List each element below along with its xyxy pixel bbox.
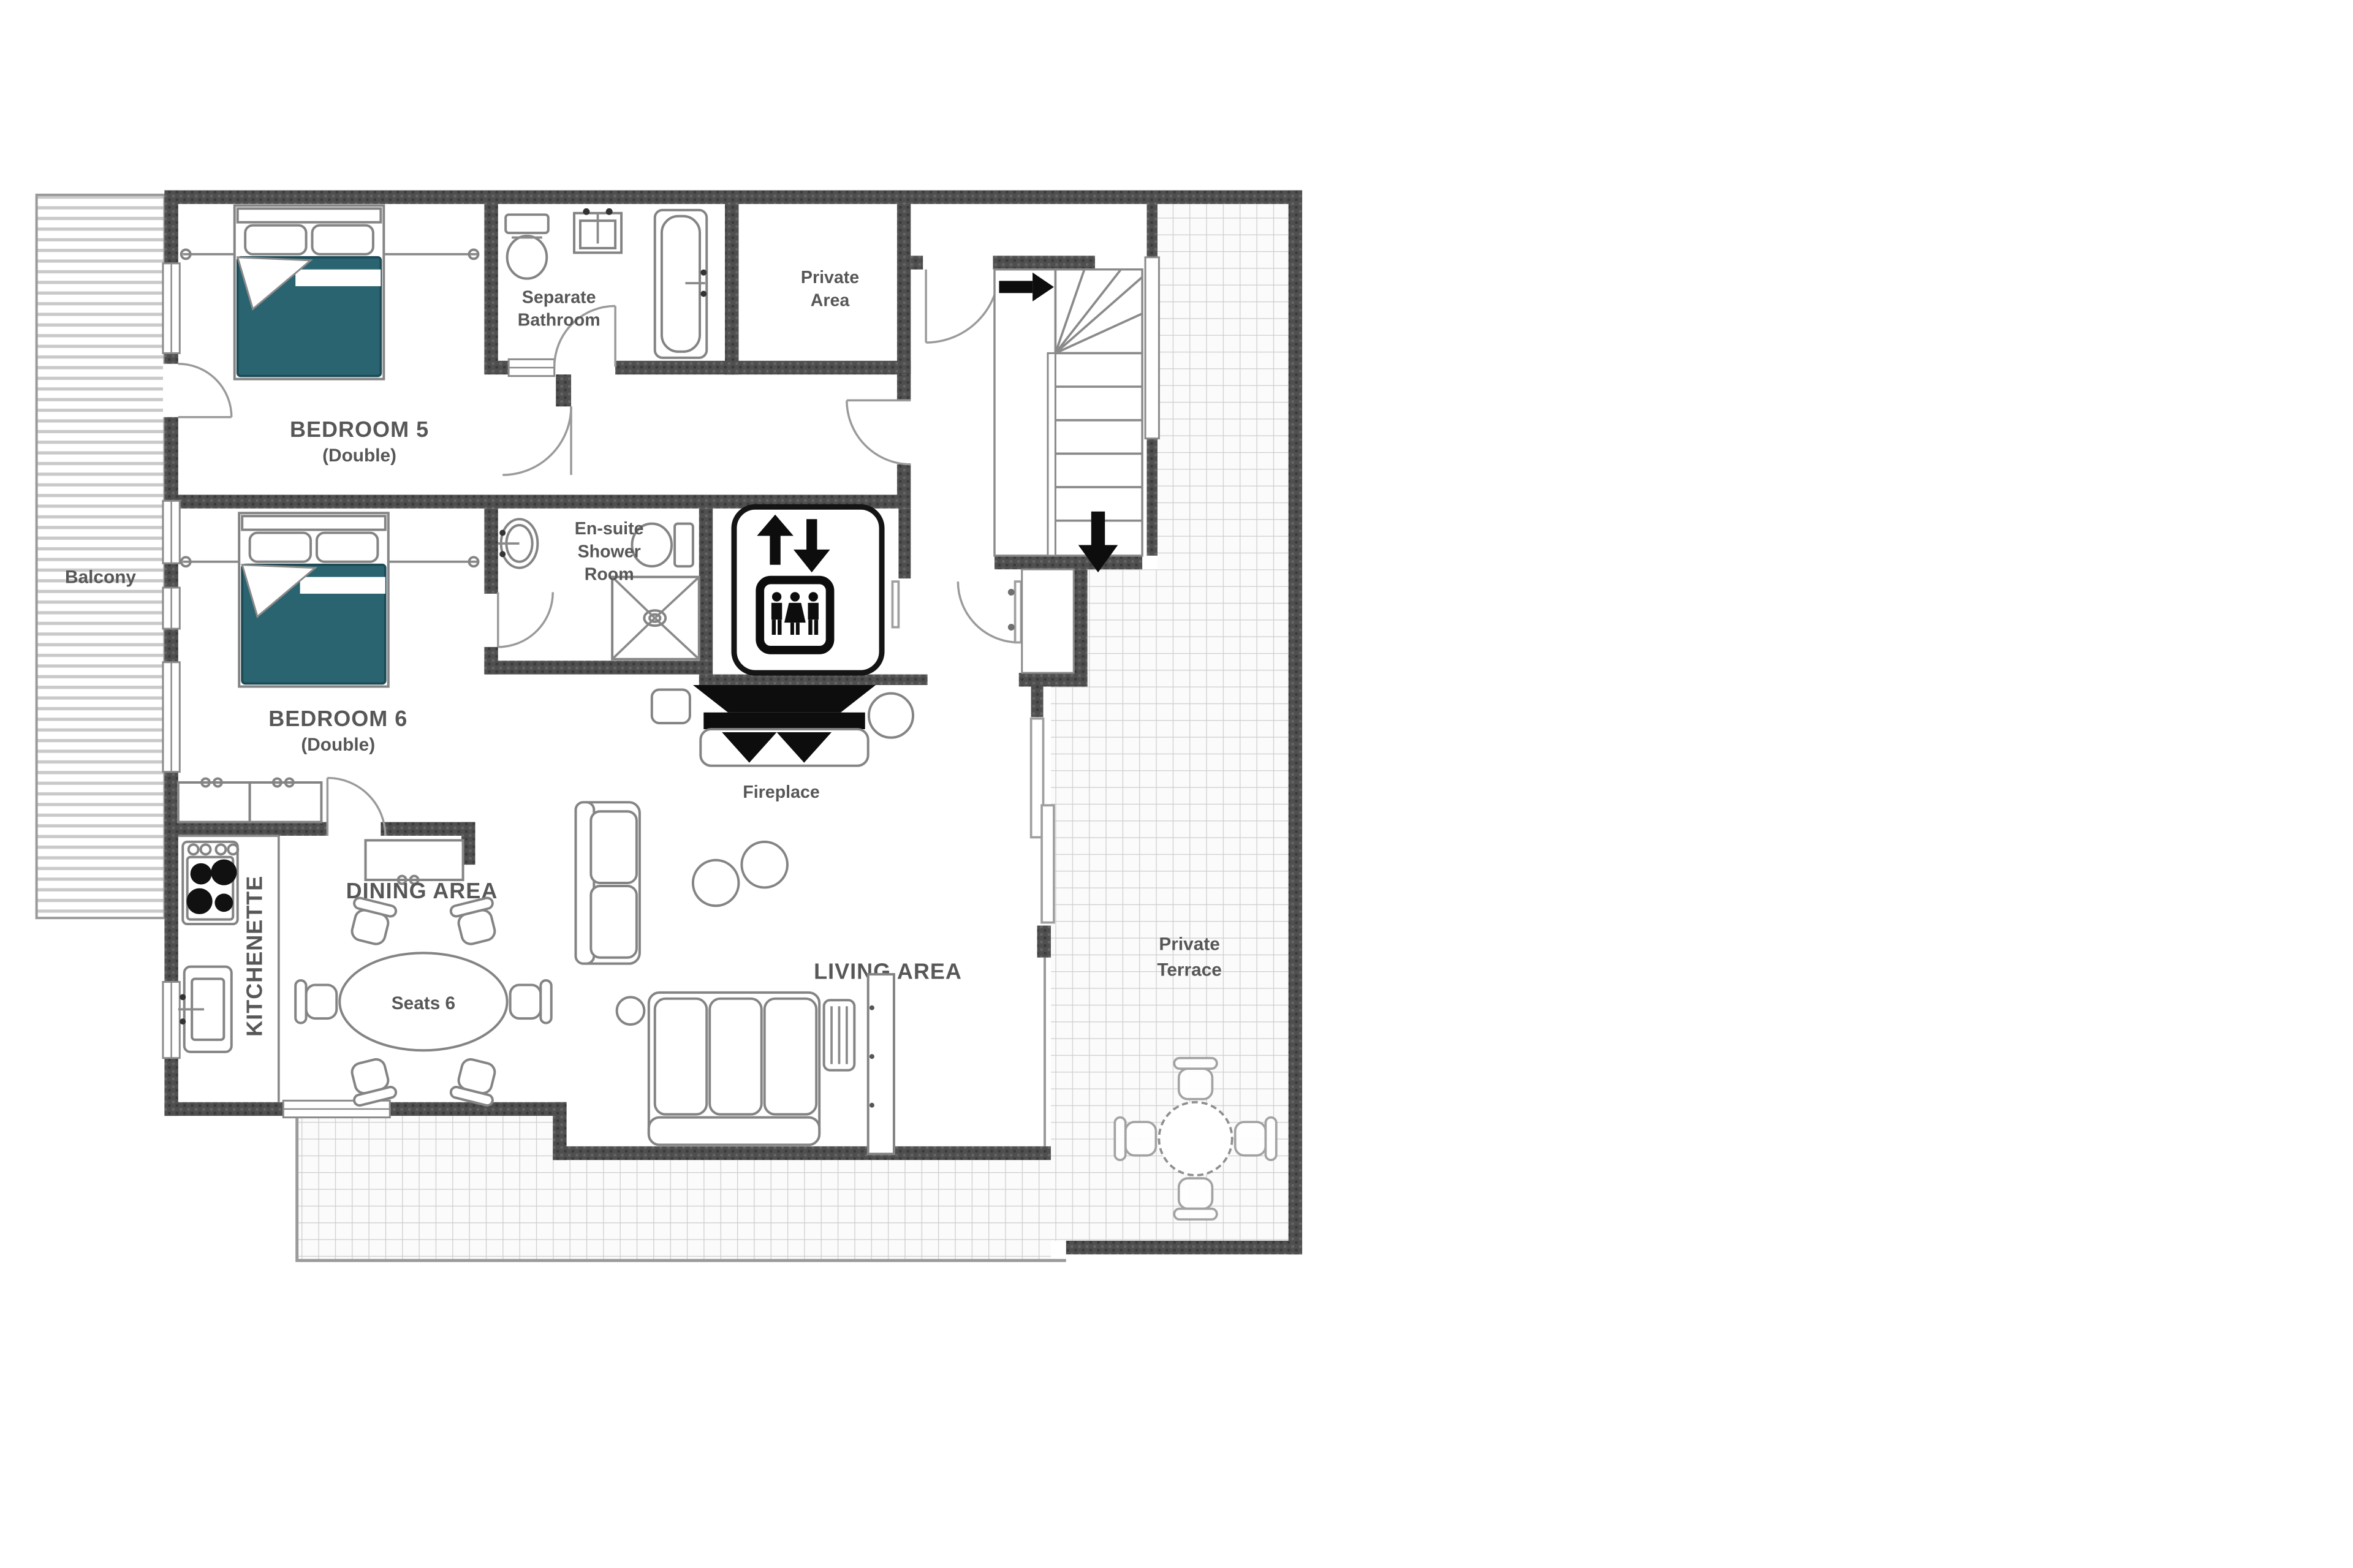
wall-storage-bottom bbox=[1019, 673, 1088, 686]
separate-bathroom: Separate Bathroom bbox=[506, 208, 707, 358]
wall-stairglass-bottom bbox=[1147, 439, 1158, 556]
door-hall-entry bbox=[926, 270, 999, 343]
stair-glass-balustrade bbox=[1145, 257, 1159, 439]
sofa-three-seat bbox=[649, 993, 819, 1145]
round-side-table bbox=[869, 694, 913, 738]
private-terrace-label-1: Private bbox=[1159, 934, 1219, 954]
bedroom-6: BEDROOM 6 (Double) bbox=[178, 513, 479, 822]
door-storage bbox=[958, 581, 1021, 642]
floor-plan: BEDROOM 5 (Double) BEDROOM 6 (Double) bbox=[0, 0, 2353, 1568]
private-area-label-2: Area bbox=[811, 290, 851, 310]
window-bedroom6-c bbox=[163, 662, 180, 772]
wall-ensuite-right bbox=[699, 509, 713, 661]
door-bedroom5-corridor bbox=[502, 406, 571, 475]
window-bathroom-corridor bbox=[509, 359, 555, 376]
bedroom5-sublabel: (Double) bbox=[322, 445, 396, 466]
wardrobe bbox=[178, 779, 322, 822]
door-ensuite bbox=[498, 592, 553, 646]
wall-living-bottom bbox=[553, 1146, 1051, 1160]
wall-bathroom-bottom-b bbox=[615, 361, 738, 374]
coffee-table-2 bbox=[741, 842, 787, 888]
wall-private-right bbox=[897, 204, 911, 374]
tv-unit bbox=[868, 974, 894, 1154]
kitchen-sink bbox=[178, 967, 232, 1052]
log-basket bbox=[652, 689, 690, 723]
wall-storage-right bbox=[1074, 569, 1087, 686]
kitchenette: KITCHENETTE bbox=[178, 836, 279, 1102]
wall-storage-stub bbox=[1031, 686, 1044, 717]
wall-bathroom-private bbox=[725, 204, 738, 374]
wall-private-bottom bbox=[725, 361, 911, 374]
stove bbox=[183, 842, 238, 924]
door-bedroom6 bbox=[327, 778, 385, 836]
ensuite-label-1: En-suite bbox=[575, 519, 644, 539]
balcony-deck bbox=[37, 195, 165, 918]
bedroom5-label: BEDROOM 5 bbox=[290, 417, 429, 442]
wall-right bbox=[1289, 191, 1302, 1255]
wall-stairglass-top bbox=[1147, 204, 1158, 257]
bedroom6-label: BEDROOM 6 bbox=[268, 706, 407, 731]
wall-bathroom-left bbox=[484, 204, 498, 373]
staircase bbox=[995, 270, 1142, 572]
wall-top bbox=[164, 191, 1302, 204]
dining-table-label: Seats 6 bbox=[392, 993, 455, 1013]
wall-bed6-divider-b bbox=[381, 822, 475, 836]
fireplace: Fireplace bbox=[652, 685, 913, 802]
double-bed-6 bbox=[239, 513, 388, 686]
small-side-table bbox=[617, 997, 645, 1025]
radiator-bench bbox=[824, 1000, 855, 1070]
ensuite-label-3: Room bbox=[585, 565, 634, 585]
wall-corridor-b bbox=[897, 464, 911, 495]
sofa-two-seat bbox=[575, 802, 639, 963]
private-area: Private Area bbox=[801, 268, 859, 310]
door-corridor-hall bbox=[847, 400, 911, 464]
ensuite-washbasin bbox=[498, 519, 538, 568]
window-kitchenette bbox=[163, 982, 180, 1058]
living-area: LIVING AREA bbox=[575, 802, 961, 1154]
window-bedroom6-b bbox=[163, 588, 180, 629]
bedroom6-sublabel: (Double) bbox=[301, 735, 375, 755]
window-bedroom6-a bbox=[163, 501, 180, 563]
toilet bbox=[506, 214, 548, 278]
bathtub bbox=[655, 210, 707, 358]
wall-ensuite-left-a bbox=[484, 509, 498, 594]
fireplace-label: Fireplace bbox=[743, 782, 819, 802]
door-elevator-hall bbox=[892, 581, 898, 627]
wall-terrace-bottom bbox=[1066, 1241, 1302, 1254]
ensuite-label-2: Shower bbox=[578, 542, 641, 561]
kitchenette-label: KITCHENETTE bbox=[241, 876, 267, 1037]
wall-fireplace bbox=[699, 675, 928, 685]
wall-elevator-right bbox=[898, 509, 911, 578]
wall-bathroom-bottom-a bbox=[484, 361, 509, 374]
bedroom-5: BEDROOM 5 (Double) bbox=[181, 205, 479, 465]
window-bedroom5 bbox=[163, 263, 180, 354]
double-bed-5 bbox=[235, 205, 384, 379]
separate-bathroom-label-2: Bathroom bbox=[518, 311, 601, 330]
sideboard bbox=[366, 840, 463, 884]
elevator-icon bbox=[734, 507, 882, 673]
hall-entry-opening bbox=[923, 254, 993, 271]
wall-stair-bottom bbox=[995, 556, 1142, 569]
separate-bathroom-label-1: Separate bbox=[522, 287, 596, 307]
balcony-door-opening bbox=[163, 364, 180, 417]
door-balcony-bedroom5 bbox=[178, 364, 232, 417]
wall-corridor-a bbox=[897, 374, 911, 400]
wall-livingterrace-stub-b bbox=[1037, 926, 1051, 958]
wall-corridor-stub bbox=[556, 374, 571, 406]
balcony-label: Balcony bbox=[65, 567, 136, 588]
storage-room bbox=[1022, 569, 1074, 673]
shower-tray bbox=[612, 577, 699, 659]
wall-ensuite-bottom bbox=[484, 661, 713, 674]
stair-rail bbox=[1048, 353, 1055, 555]
terrace-table bbox=[1159, 1102, 1232, 1175]
washbasin bbox=[574, 208, 621, 253]
private-area-label-1: Private bbox=[801, 268, 859, 287]
wall-bed6-divider-a bbox=[164, 822, 327, 836]
coffee-table-1 bbox=[693, 860, 739, 906]
dining-area: DINING AREA Seats 6 bbox=[295, 840, 551, 1106]
private-terrace-label-2: Terrace bbox=[1157, 960, 1221, 980]
